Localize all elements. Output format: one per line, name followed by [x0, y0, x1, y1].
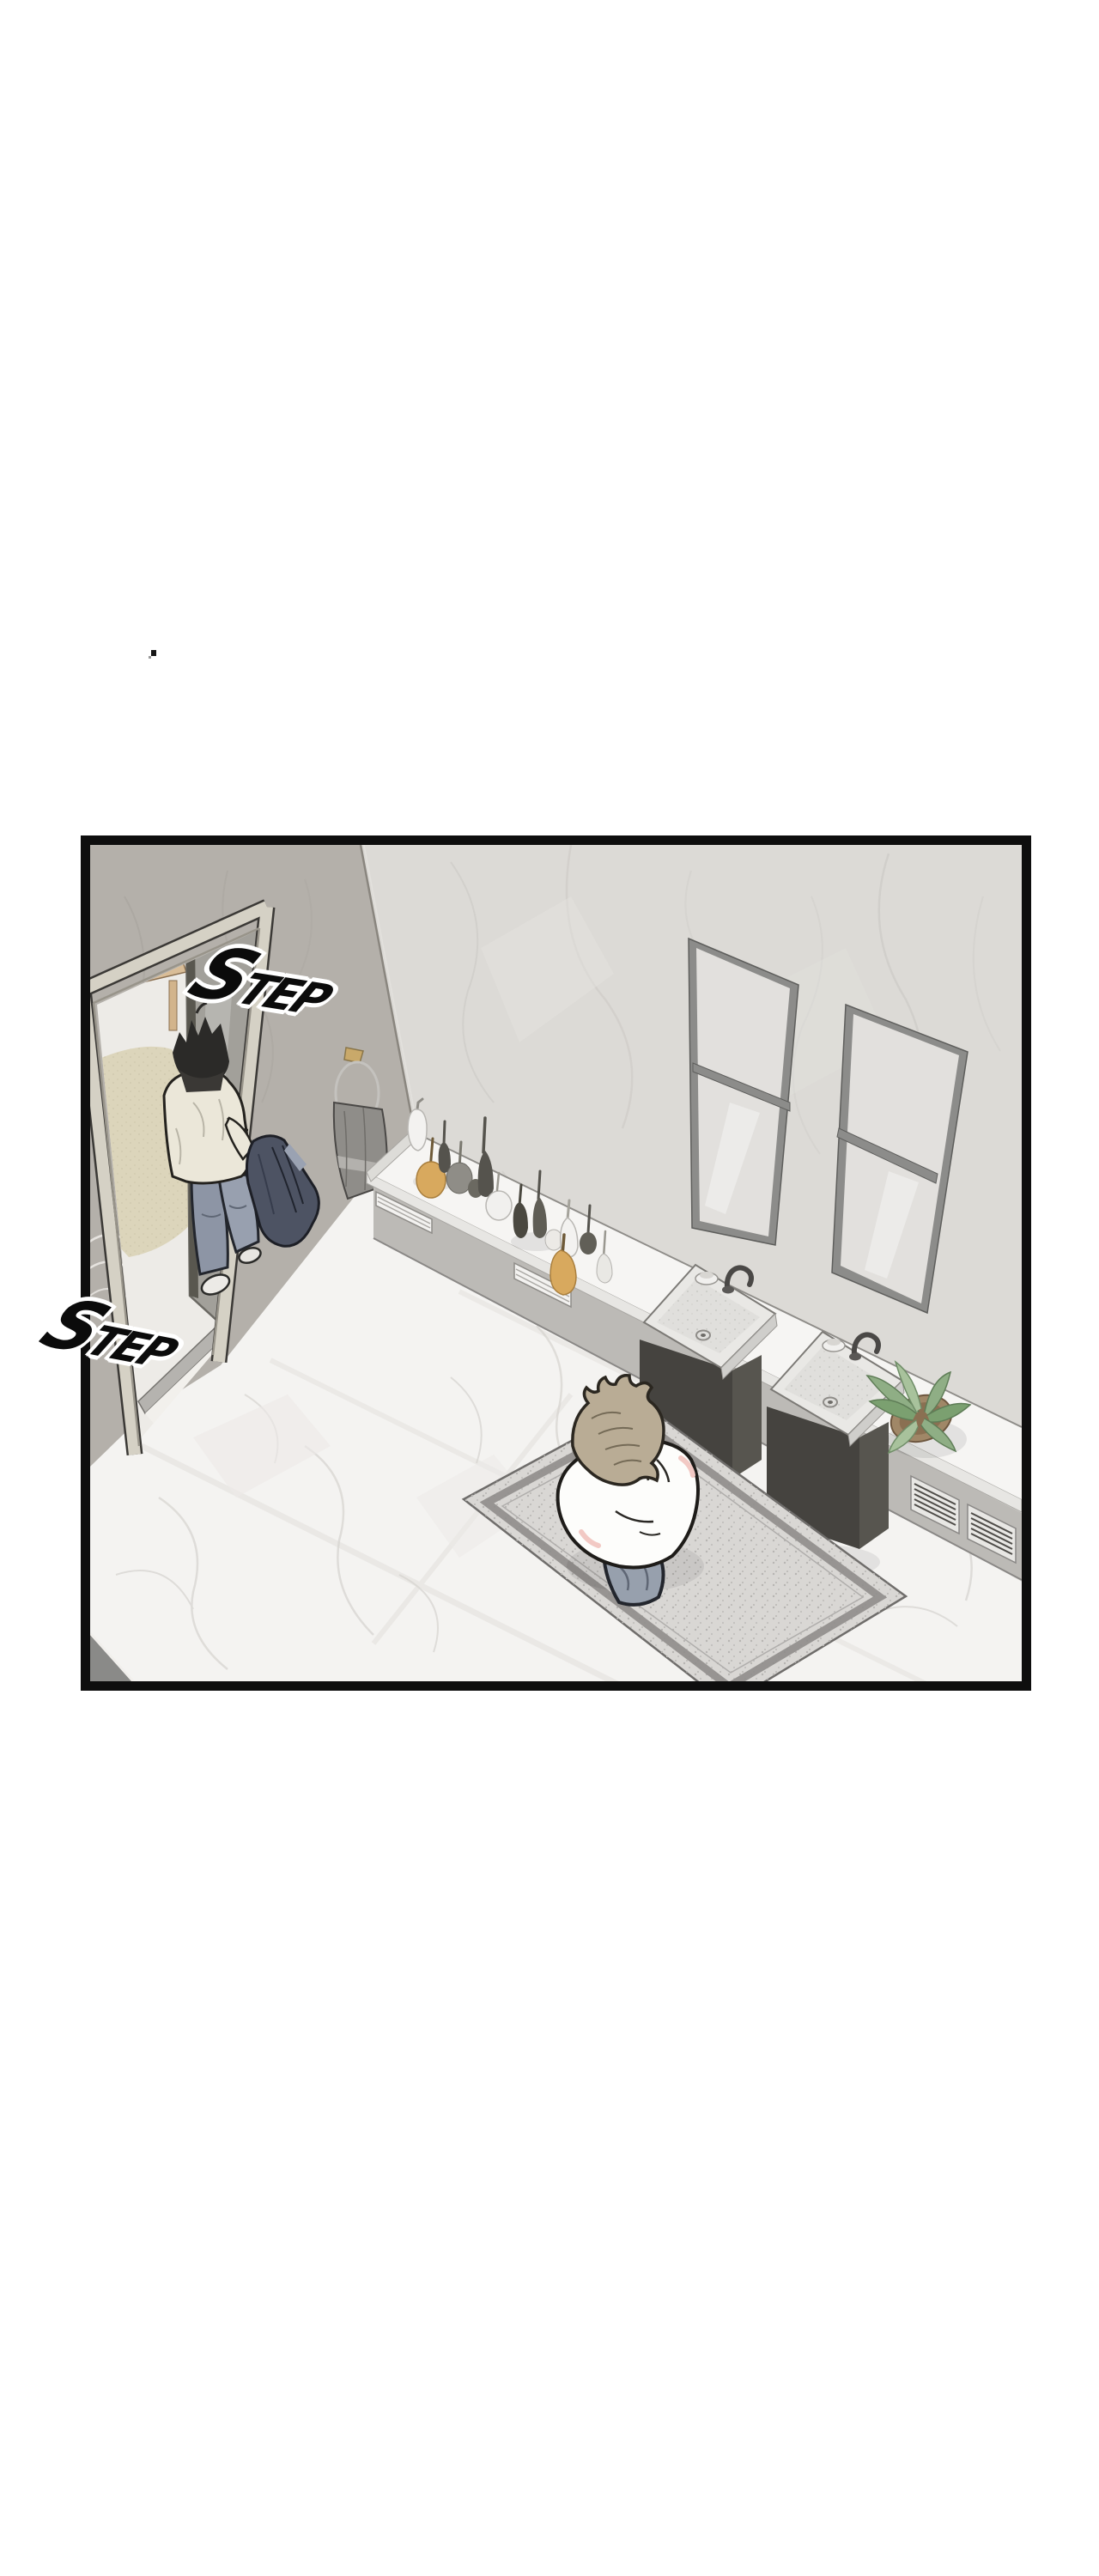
standing-man-hair — [573, 1376, 664, 1485]
soap-dish-right — [823, 1339, 845, 1352]
ink-speck — [151, 650, 156, 656]
ink-speck-dot — [149, 656, 151, 659]
soap-dish-left — [695, 1272, 718, 1285]
